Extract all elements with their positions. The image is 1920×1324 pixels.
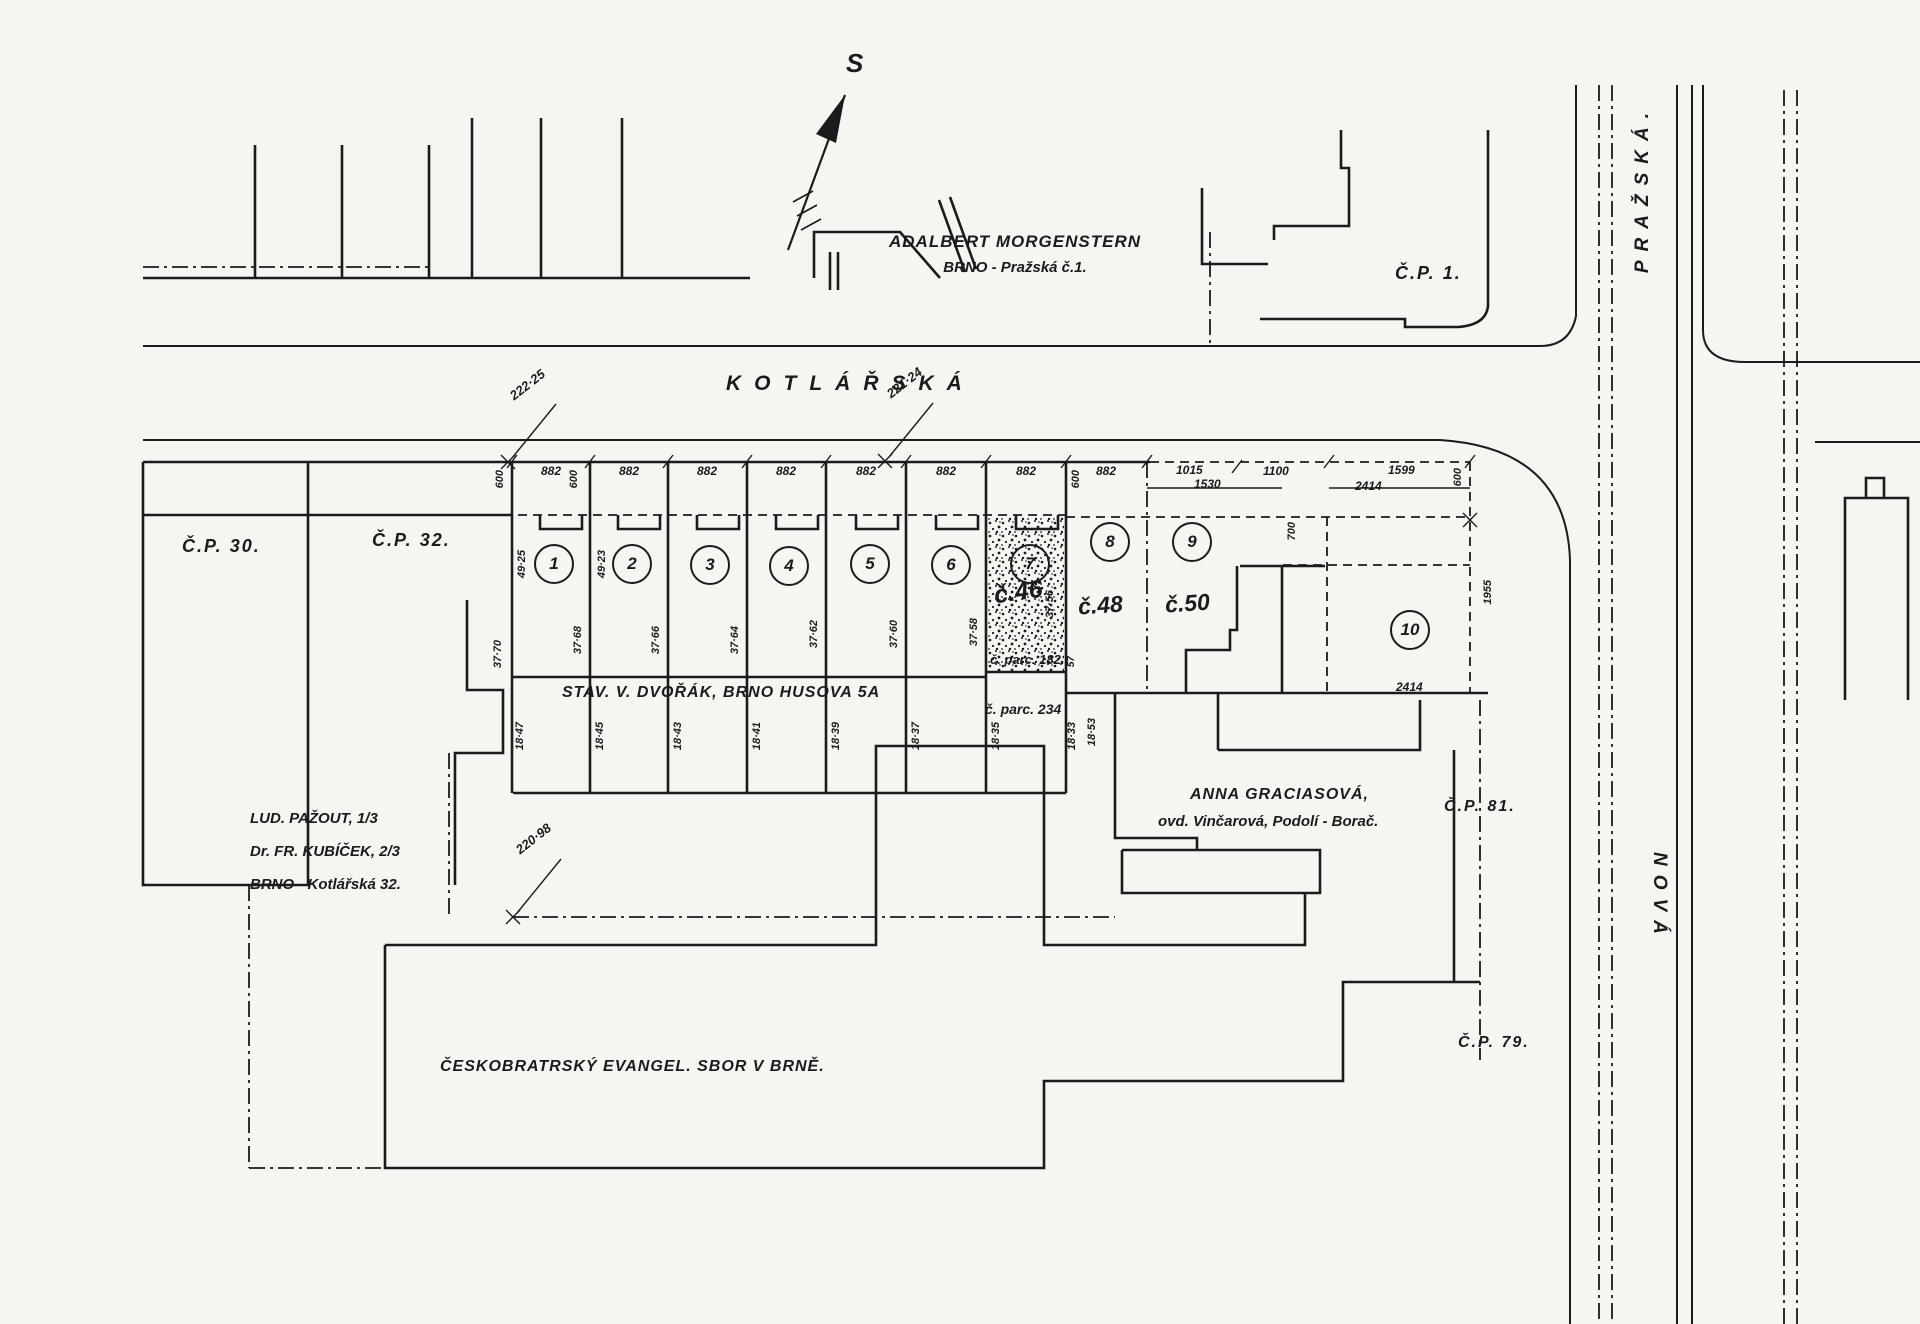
plot-circle-3: 3 xyxy=(690,545,730,585)
street-label-kotlarska: KOTLÁŘSKÁ xyxy=(726,372,975,396)
dim-18-37: 18·37 xyxy=(910,722,922,750)
plot-circle-2: 2 xyxy=(612,544,652,584)
dim-1955: 1955 xyxy=(1482,580,1494,604)
dim-18-45: 18·45 xyxy=(594,722,606,750)
dim-600-east: 600 xyxy=(1452,468,1464,486)
plot-circle-1: 1 xyxy=(534,544,574,584)
plot-number-10: 10 xyxy=(1401,620,1420,640)
dim-49-23: 49·23 xyxy=(596,550,608,578)
parcel-182-label: č. parc. 182. xyxy=(990,652,1064,667)
plot-number-5: 5 xyxy=(865,554,874,574)
dim-600-west1: 600 xyxy=(494,470,506,488)
plot-number-6: 6 xyxy=(946,555,955,575)
dim-1530: 1530 xyxy=(1194,477,1221,491)
plot-circle-9: 9 xyxy=(1172,522,1212,562)
dim-18-43: 18·43 xyxy=(672,722,684,750)
dim-882-plot8: 882 xyxy=(1091,464,1121,478)
street-label-nova: NOVÁ xyxy=(1648,852,1670,943)
owner-dvorak: STAV. V. DVOŘÁK, BRNO HUSOVA 5A xyxy=(562,684,880,702)
owner-evangel: ČESKOBRATRSKÝ EVANGEL. SBOR V BRNĚ. xyxy=(440,1058,825,1076)
dim-882-plot5: 882 xyxy=(851,464,881,478)
dim-2414-north: 2414 xyxy=(1355,479,1382,493)
dim-882-plot1: 882 xyxy=(536,464,566,478)
dim-1015: 1015 xyxy=(1176,463,1203,477)
dim-882-plot3: 882 xyxy=(692,464,722,478)
plot-number-8: 8 xyxy=(1105,532,1114,552)
owner-graciasova-line1: ANNA GRACIASOVÁ, xyxy=(1190,786,1369,804)
dim-57: 57 xyxy=(1066,656,1077,667)
dim-1100: 1100 xyxy=(1263,464,1289,478)
dim-18-33: 18·33 xyxy=(1066,722,1078,750)
owner-morgenstern-line1: ADALBERT MORGENSTERN xyxy=(870,232,1160,252)
house-number-cp81: Č.P. 81. xyxy=(1444,798,1516,816)
dim-37-62: 37·62 xyxy=(808,620,820,648)
parcel-234-label: č. parc. 234 xyxy=(985,701,1061,717)
dim-600-plot8: 600 xyxy=(1070,470,1082,488)
house-number-cp30: Č.P. 30. xyxy=(182,536,261,557)
house-48-label: č.48 xyxy=(1077,590,1124,620)
dim-882-plot2: 882 xyxy=(614,464,644,478)
plot-number-9: 9 xyxy=(1187,532,1196,552)
dim-18-35: 18·35 xyxy=(990,722,1002,750)
plot-number-2: 2 xyxy=(627,554,636,574)
dim-37-64: 37·64 xyxy=(729,626,741,654)
plot-circle-7: 7 xyxy=(1010,544,1050,584)
dim-49-25: 49·25 xyxy=(516,550,528,578)
plot-number-4: 4 xyxy=(784,556,793,576)
dim-37-60: 37·60 xyxy=(888,620,900,648)
dim-700: 700 xyxy=(1286,522,1298,540)
dim-37-68: 37·68 xyxy=(572,626,584,654)
dim-18-47: 18·47 xyxy=(514,722,526,750)
dim-882-plot4: 882 xyxy=(771,464,801,478)
dim-37-66: 37·66 xyxy=(650,626,662,654)
dim-18-39: 18·39 xyxy=(830,722,842,750)
house-50-label: č.50 xyxy=(1164,588,1211,618)
dim-37-70: 37·70 xyxy=(492,640,504,668)
plot-circle-5: 5 xyxy=(850,544,890,584)
owner-pazout-line2: Dr. FR. KUBÍČEK, 2/3 xyxy=(250,843,400,860)
dim-37-58: 37·58 xyxy=(968,618,980,646)
owner-morgenstern-line2: BRNO - Pražská č.1. xyxy=(870,259,1160,276)
owner-pazout-line1: LUD. PAŽOUT, 1/3 xyxy=(250,810,378,827)
owner-pazout-line3: BRNO - Kotlářská 32. xyxy=(250,876,401,893)
plot-circle-6: 6 xyxy=(931,545,971,585)
dim-1599: 1599 xyxy=(1388,463,1415,477)
dim-37-56: 37·56 xyxy=(1044,590,1056,618)
dim-18-41: 18·41 xyxy=(751,722,763,750)
dim-882-plot7: 882 xyxy=(1011,464,1041,478)
plot-circle-8: 8 xyxy=(1090,522,1130,562)
plot-circle-10: 10 xyxy=(1390,610,1430,650)
owner-graciasova-line2: ovd. Vinčarová, Podolí - Borač. xyxy=(1158,813,1378,830)
plot-number-3: 3 xyxy=(705,555,714,575)
house-number-cp79: Č.P. 79. xyxy=(1458,1034,1530,1052)
plot-number-7: 7 xyxy=(1025,554,1034,574)
house-number-cp1: Č.P. 1. xyxy=(1395,263,1462,284)
dim-18-53: 18·53 xyxy=(1086,718,1098,746)
plot-number-1: 1 xyxy=(549,554,558,574)
north-arrow-icon xyxy=(788,95,845,250)
dim-2414-south: 2414 xyxy=(1396,680,1423,694)
cadastral-plan-page: S KOTLÁŘSKÁ PRAŽSKÁ. NOVÁ ADALBERT MORGE… xyxy=(0,0,1920,1324)
street-label-prazska: PRAŽSKÁ. xyxy=(1632,104,1654,273)
house-number-cp32: Č.P. 32. xyxy=(372,530,451,551)
plot-circle-4: 4 xyxy=(769,546,809,586)
dim-882-plot6: 882 xyxy=(931,464,961,478)
north-label: S xyxy=(846,48,863,79)
dim-600-west2: 600 xyxy=(568,470,580,488)
